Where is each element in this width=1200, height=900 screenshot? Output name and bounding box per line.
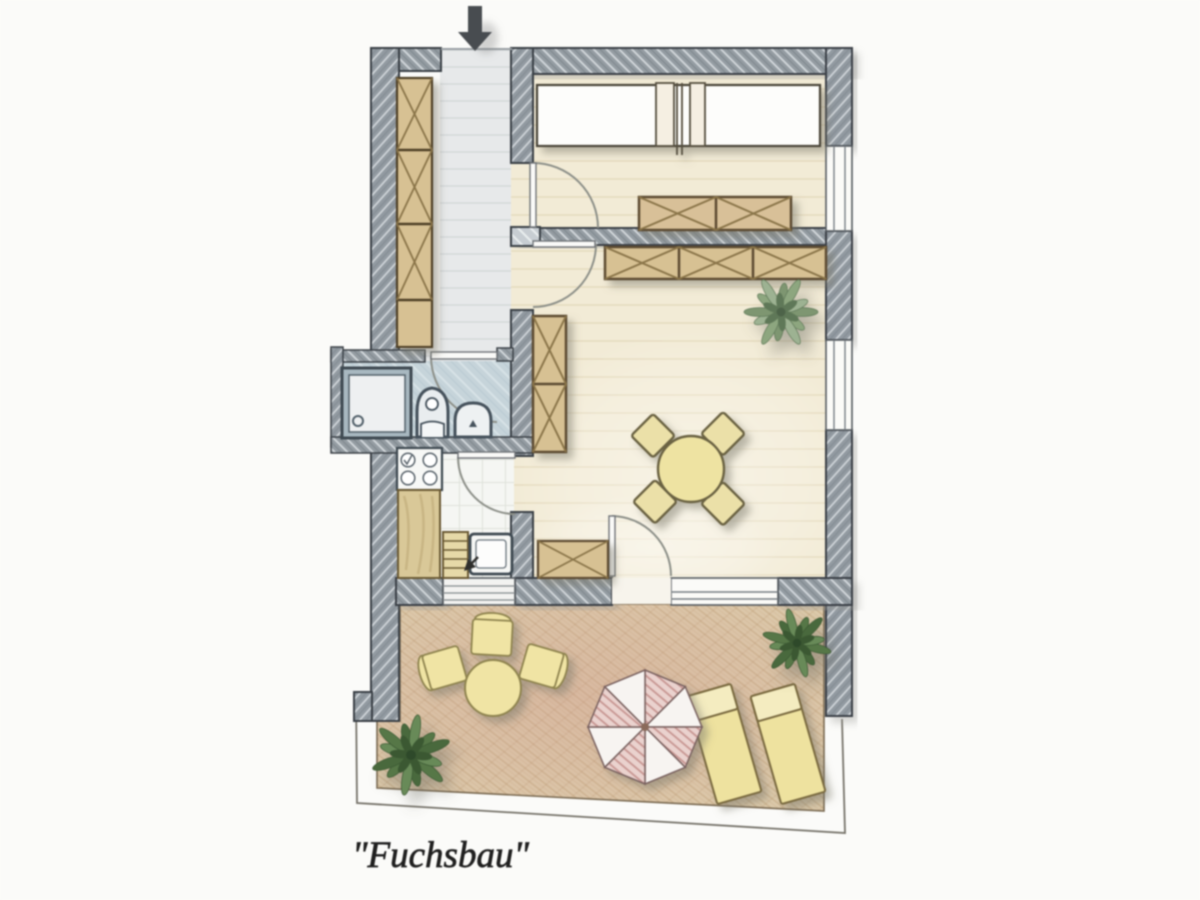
svg-text:"Fuchsbau": "Fuchsbau"	[352, 835, 529, 876]
